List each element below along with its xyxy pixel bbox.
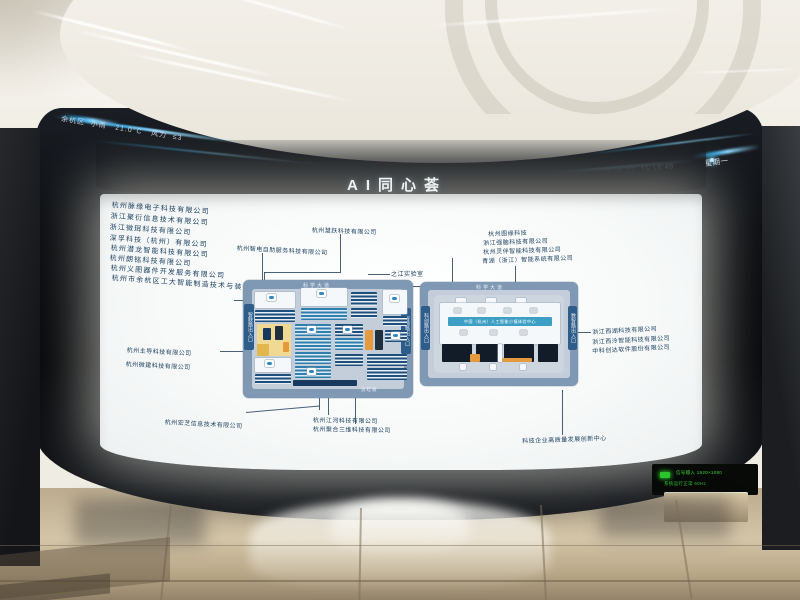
building-block bbox=[295, 352, 331, 364]
building-block bbox=[293, 380, 357, 386]
building-block bbox=[335, 354, 363, 366]
side-wall-right bbox=[762, 126, 800, 550]
building-block bbox=[442, 344, 472, 362]
building-icon bbox=[454, 308, 461, 313]
weather-condition: 小雨 bbox=[90, 121, 107, 130]
company-label: 之江实验室 bbox=[391, 269, 424, 278]
building-block bbox=[257, 344, 269, 356]
entrance-tab-left: 科创路出入口 bbox=[421, 306, 430, 350]
building-block bbox=[301, 308, 347, 320]
side-wall-left bbox=[0, 128, 40, 566]
town-banner: 中国（杭州）人工智能小镇体验中心 bbox=[448, 317, 552, 326]
entrance-tab-right: 数智路出入口 bbox=[568, 306, 577, 350]
building-block bbox=[460, 364, 466, 370]
connector-line bbox=[220, 351, 245, 352]
building-icon bbox=[390, 295, 399, 302]
building-icon bbox=[343, 326, 352, 333]
building-block bbox=[470, 354, 480, 362]
building-icon bbox=[265, 360, 274, 367]
building-block bbox=[375, 330, 383, 350]
status-line2: 系统运行正常 60Hz bbox=[664, 481, 706, 487]
building-block bbox=[351, 308, 377, 318]
building-block bbox=[335, 338, 363, 350]
status-led-icon bbox=[660, 472, 670, 478]
building-icon bbox=[504, 308, 511, 313]
building-block bbox=[351, 292, 377, 306]
building-icon bbox=[460, 330, 467, 335]
road-label-bottom: 良睦路 bbox=[361, 387, 378, 393]
building-block bbox=[498, 344, 502, 362]
building-block bbox=[367, 368, 407, 380]
building-block bbox=[520, 364, 526, 370]
building-block bbox=[538, 344, 558, 362]
building-block bbox=[365, 330, 373, 350]
company-label: 杭州聚合三维科技有限公司 bbox=[313, 424, 391, 434]
entrance-tab-left: 智联路出入口 bbox=[244, 304, 254, 350]
dark-floor-reflection bbox=[75, 500, 205, 545]
building-icon bbox=[520, 330, 527, 335]
building-icon bbox=[307, 326, 316, 333]
ceiling-cove-rings bbox=[430, 0, 800, 114]
connector-line bbox=[562, 390, 563, 435]
building-icon bbox=[317, 290, 326, 297]
building-block bbox=[255, 374, 291, 384]
status-line1: 信号输入 1920×1080 bbox=[676, 470, 722, 476]
connector-line bbox=[368, 274, 390, 275]
screen-title: AI同心荟 bbox=[347, 174, 447, 195]
building-block bbox=[255, 310, 295, 322]
building-block bbox=[295, 338, 331, 350]
connector-line bbox=[340, 234, 341, 272]
lobby-scene: 余杭区 小雨 21.0°C 风力 ≤3 2024-05-27 15:18:48 … bbox=[0, 0, 800, 600]
building-icon bbox=[267, 294, 276, 301]
connector-line bbox=[264, 272, 341, 273]
building-block bbox=[490, 364, 496, 370]
building-icon bbox=[307, 368, 316, 375]
building-block bbox=[502, 358, 532, 362]
weather-wind-label: 风力 bbox=[151, 130, 168, 139]
building-icon bbox=[391, 332, 400, 339]
building-icon bbox=[530, 308, 537, 313]
building-block bbox=[383, 290, 407, 314]
building-icon bbox=[478, 308, 485, 313]
building-block bbox=[283, 342, 289, 352]
status-panel: 信号输入 1920×1080 系统运行正常 60Hz bbox=[652, 464, 758, 495]
building-block bbox=[263, 328, 271, 340]
building-block bbox=[275, 326, 283, 340]
road-label-top: 科学大道 bbox=[476, 284, 504, 291]
building-block bbox=[367, 354, 407, 366]
dark-floor-reflection bbox=[600, 496, 730, 538]
screen-floor-reflection-core bbox=[330, 500, 470, 555]
building-icon bbox=[490, 330, 497, 335]
building-block bbox=[383, 316, 407, 326]
site-map-right: 科学大道 科创路出入口 数智路出入口 中国（杭州）人工智能小镇体验中心 bbox=[420, 282, 578, 386]
site-map-left: 科学大道 良睦路 智联路出入口 智源路出入口 bbox=[243, 280, 413, 398]
